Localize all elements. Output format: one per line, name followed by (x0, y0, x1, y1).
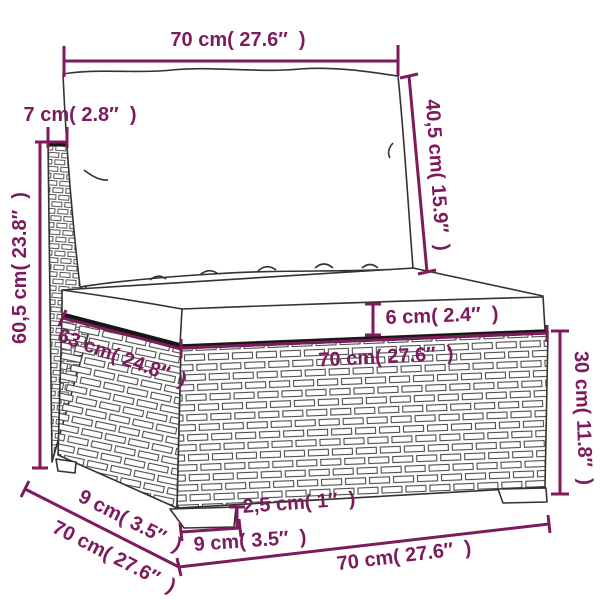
dim-total-height-line (32, 142, 48, 468)
dim-label-top-width: 70 cm( 27.6″ ) (170, 30, 305, 50)
dim-label-back-thickness: 7 cm( 2.8″ ) (24, 105, 137, 125)
foot-front-right (498, 488, 547, 503)
dim-label-seat-cushion-thickness: 6 cm( 2.4″ ) (385, 304, 499, 328)
foot-back-left (56, 459, 76, 473)
dim-base-height-line (551, 331, 569, 494)
dim-label-base-height: 30 cm( 11.8″ ) (571, 351, 596, 486)
back-cushion (63, 68, 413, 287)
product-dimension-diagram: 70 cm( 27.6″ ) 40,5 cm( 15.9″ ) 7 cm( 2.… (0, 0, 600, 600)
dim-label-total-height: 60,5 cm( 23.8″ ) (10, 192, 30, 344)
